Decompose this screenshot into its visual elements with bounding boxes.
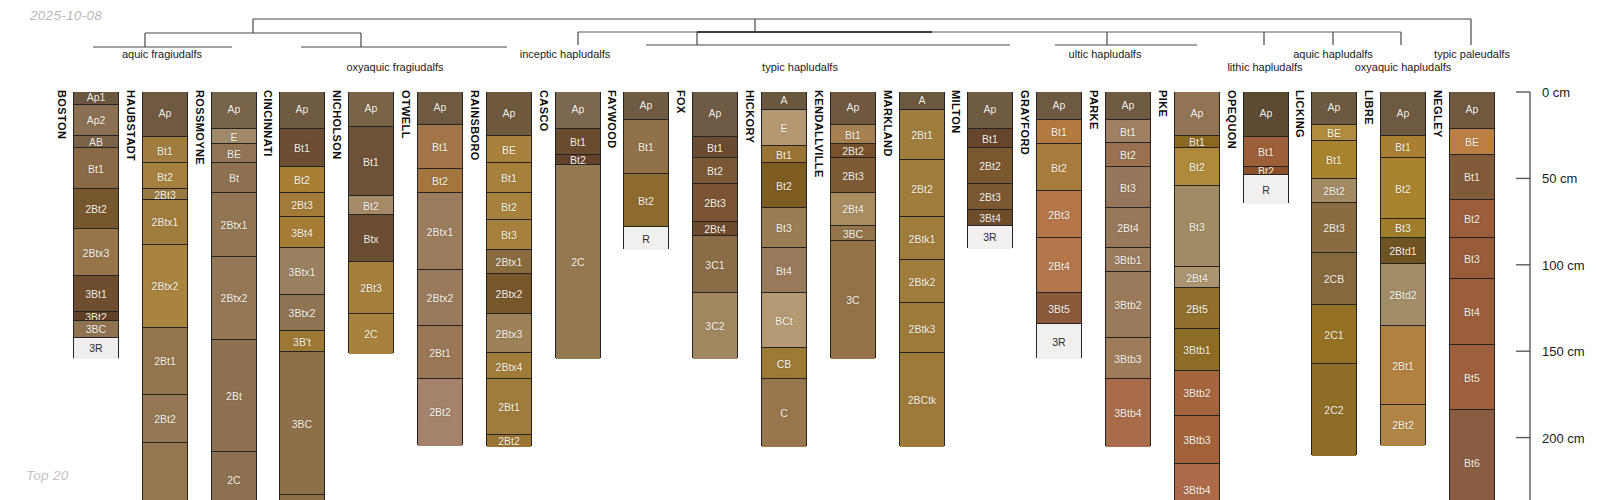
horizon: 2Bt3 [349, 261, 393, 314]
horizon: 2Btx2 [418, 269, 462, 326]
horizon: Bt1 [74, 147, 118, 190]
horizon-label: Ap [1037, 100, 1081, 111]
horizon-label: Bt1 [280, 143, 324, 154]
profile-column-otwell: ApBt1Bt22Btx12Btx22Bt12Bt2 [417, 92, 463, 445]
horizon: C [762, 378, 806, 447]
horizon-label: Bt1 [349, 157, 393, 168]
horizon: Bt1 [762, 145, 806, 164]
horizon: 2Bt1 [900, 109, 944, 161]
horizon-label: 2Bt2 [831, 146, 875, 157]
horizon: Bt2 [693, 157, 737, 184]
horizon-label: BE [1312, 128, 1356, 139]
horizon: 3Btx2 [280, 294, 324, 332]
profile-name-label: NEGLEY [1432, 90, 1444, 138]
cluster-label: lithic hapludalfs [1227, 61, 1302, 73]
horizon: 2C1 [1312, 304, 1356, 364]
horizon-label: BE [1450, 137, 1494, 148]
horizon: 2Bt3 [968, 183, 1012, 210]
horizon: Ap [1381, 92, 1425, 135]
profile-column-libre: ApBt1Bt2Bt32Btd12Btd22Bt12Bt2 [1380, 92, 1426, 445]
profile-column-haubstadt: ApBt1Bt22Bt32Btx12Btx22Bt12Bt2 [142, 92, 188, 500]
horizon-label: 2Btx2 [212, 293, 256, 304]
horizon: Bt2 [1450, 199, 1494, 239]
horizon: 3BC [280, 351, 324, 496]
profile-name-label: GRAYFORD [1019, 90, 1031, 155]
horizon-label: Ap [1312, 102, 1356, 113]
horizon-label: R [1244, 185, 1288, 196]
horizon-label: 3R [968, 232, 1012, 243]
horizon: Bt1 [349, 126, 393, 197]
horizon: Bt1 [1244, 136, 1288, 167]
horizon: 2Bt [212, 339, 256, 453]
horizon: 3C [831, 240, 875, 359]
horizon: 3BC [831, 225, 875, 242]
horizon: 2Bt3 [693, 183, 737, 223]
horizon: Bt2 [762, 162, 806, 208]
horizon-label: 2Btk1 [900, 234, 944, 245]
horizon: E [212, 128, 256, 145]
horizon-label: Btx [349, 234, 393, 245]
horizon-label: 2Bt3 [1312, 223, 1356, 234]
depth-axis-tick-label: 100 cm [1542, 257, 1585, 272]
horizon: 2Bt2 [74, 188, 118, 229]
horizon-label: Bt [212, 173, 256, 184]
horizon: Bt [212, 162, 256, 193]
horizon: Bt2 [1381, 157, 1425, 219]
horizon: 2Btx4 [487, 352, 531, 379]
horizon: BE [212, 143, 256, 164]
profile-column-nicholson: ApBt1Bt2Btx2Bt32C [348, 92, 394, 353]
horizon: 2Btd1 [1381, 237, 1425, 264]
horizon: 3Btb1 [1175, 328, 1219, 371]
horizon: Ap [1312, 92, 1356, 125]
horizon-label: Bt2 [762, 181, 806, 192]
horizon: Bt2 [1106, 142, 1150, 168]
horizon: Bt1 [487, 162, 531, 193]
horizon-label: 3BC [280, 419, 324, 430]
horizon-label: Ap [212, 104, 256, 115]
horizon-label: 2C [556, 257, 600, 268]
horizon-label: 2Bt2 [143, 414, 187, 425]
horizon: Ap [1450, 92, 1494, 128]
horizon-label: Ap [418, 102, 462, 113]
profile-column-fox: ApBt1Bt22Bt32Bt43C13C2 [692, 92, 738, 358]
horizon-label: Ap [968, 104, 1012, 115]
horizon-label: A [762, 95, 806, 106]
horizon-label: Bt1 [1244, 147, 1288, 158]
horizon-label: Ap [487, 108, 531, 119]
horizon-label: 3C1 [693, 260, 737, 271]
horizon-label: 3B't [280, 337, 324, 348]
depth-axis-tick-label: 0 cm [1542, 85, 1570, 100]
horizon: 2Btx1 [418, 192, 462, 271]
horizon: Bt5 [1450, 344, 1494, 411]
horizon-label: Bt3 [1450, 254, 1494, 265]
horizon-label: 2C [212, 475, 256, 486]
horizon: Ap [143, 92, 187, 137]
horizon-label: Bt1 [968, 134, 1012, 145]
horizon-label: BCt [762, 316, 806, 327]
horizon-label: 2Btd1 [1381, 246, 1425, 257]
horizon: Ap [349, 92, 393, 127]
horizon: Bt1 [143, 136, 187, 163]
cluster-label: inceptic hapludalfs [520, 48, 611, 60]
horizon-label: Bt1 [624, 142, 668, 153]
horizon: 2Bt4 [1175, 266, 1219, 288]
profile-name-label: OTWELL [400, 90, 412, 139]
horizon: Bt1 [1106, 119, 1150, 143]
horizon-label: Ap [831, 102, 875, 113]
horizon: BE [487, 135, 531, 164]
horizon-label: 2Bt4 [1037, 261, 1081, 272]
horizon-label: 3Bt4 [968, 213, 1012, 224]
horizon: Bt2 [1175, 147, 1219, 187]
horizon-label: Bt1 [143, 146, 187, 157]
horizon-label: 3Btb2 [1106, 300, 1150, 311]
horizon-label: 2Bt3 [693, 198, 737, 209]
horizon-label: A [900, 95, 944, 106]
profile-name-label: MILTON [950, 90, 962, 134]
horizon-label: 2Btx1 [487, 257, 531, 268]
horizon-label: 2Bt2 [74, 204, 118, 215]
horizon-label: 2Bt1 [900, 130, 944, 141]
horizon-label: Ap [693, 108, 737, 119]
horizon-label: 2C [349, 329, 393, 340]
horizon-label: 3R [1037, 337, 1081, 348]
horizon: Bt1 [1381, 135, 1425, 159]
horizon: 2Bt1 [1381, 325, 1425, 406]
horizon-label: R [624, 234, 668, 245]
horizon-label: 2Bt4 [831, 204, 875, 215]
horizon-label: 2Bt4 [1175, 273, 1219, 284]
cluster-label: typic hapludalfs [762, 61, 838, 73]
horizon: 2BCtk [900, 352, 944, 447]
profile-name-label: FAYWOOD [606, 90, 618, 149]
horizon-label: Bt1 [556, 137, 600, 148]
horizon: 3Btb3 [1175, 415, 1219, 465]
horizon-label: 2C2 [1312, 405, 1356, 416]
bottom-left-annotation: Top 20 [26, 468, 69, 483]
profile-name-label: CASCO [538, 90, 550, 132]
horizon: 2C [556, 164, 600, 359]
profile-column-casco: ApBt1Bt22C [555, 92, 601, 358]
profile-column-rainsboro: ApBEBt1Bt2Bt32Btx12Btx22Btx32Btx42Bt12Bt… [486, 92, 532, 446]
horizon-label: Bt1 [1450, 172, 1494, 183]
horizon-label: Ap [1381, 108, 1425, 119]
horizon-label: Bt3 [1106, 183, 1150, 194]
profile-column-faywood: ApBt1Bt2R [623, 92, 669, 249]
horizon-label: Bt2 [693, 166, 737, 177]
horizon-label: 2Bt2 [1312, 186, 1356, 197]
horizon-label: Bt1 [1106, 127, 1150, 138]
horizon-label: Bt2 [487, 202, 531, 213]
horizon: Bt1 [280, 128, 324, 168]
horizon-label: Bt6 [1450, 458, 1494, 469]
horizon: 2Bt3 [280, 192, 324, 218]
profile-name-label: BOSTON [56, 90, 68, 139]
horizon [143, 442, 187, 500]
horizon-label: Ap [143, 108, 187, 119]
horizon: 2Bt2 [1312, 178, 1356, 204]
horizon-label: 3C2 [693, 321, 737, 332]
horizon-label: E [212, 132, 256, 143]
horizon: Bt4 [1450, 278, 1494, 345]
horizon: Bt3 [1381, 218, 1425, 239]
horizon-label: Ap2 [74, 115, 118, 126]
horizon: A [762, 92, 806, 109]
horizon: Ap [693, 92, 737, 137]
horizon: 3Bt4 [280, 216, 324, 249]
horizon-label: 2Btd2 [1381, 290, 1425, 301]
horizon: Bt1 [968, 128, 1012, 149]
horizon-label: Bt2 [349, 201, 393, 212]
horizon-label: Ap [624, 100, 668, 111]
horizon: Bt6 [1450, 409, 1494, 500]
horizon: 2Bt1 [487, 378, 531, 435]
profile-column-grayford: ApBt1Bt22Bt32Bt43Bt53R [1036, 92, 1082, 358]
profile-name-label: LICKING [1294, 90, 1306, 138]
horizon-label: Bt4 [762, 266, 806, 277]
horizon: Ap [968, 92, 1012, 128]
profile-column-boston: Ap1Ap2ABBt12Bt22Btx33Bt13Bt23BC3R [73, 92, 119, 358]
horizon: 3BC [74, 320, 118, 339]
profile-column-hickory: AEBt1Bt2Bt3Bt4BCtCBC [761, 92, 807, 446]
horizon: Bt1 [1450, 154, 1494, 200]
horizon: Bt2 [487, 192, 531, 221]
horizon: Ap [831, 92, 875, 125]
horizon-label: Bt1 [418, 142, 462, 153]
horizon: 2Btk3 [900, 302, 944, 354]
horizon-label: 2Bt1 [1381, 361, 1425, 372]
horizon: R [624, 226, 668, 250]
horizon: Bt3 [762, 207, 806, 248]
profile-name-label: RAINSBORO [469, 90, 481, 161]
horizon-label: 2Bt2 [900, 184, 944, 195]
horizon: Ap1 [74, 92, 118, 104]
horizon-label: Bt1 [1381, 142, 1425, 153]
profile-column-rossmoyne: ApEBEBt2Btx12Btx22Bt2C [211, 92, 257, 500]
horizon-label: Bt2 [1381, 184, 1425, 195]
horizon: Ap [1037, 92, 1081, 120]
horizon-label: 3Btb4 [1106, 408, 1150, 419]
profile-column-licking: ApBEBt12Bt22Bt32CB2C12C2 [1311, 92, 1357, 455]
horizon-label: Bt2 [1175, 162, 1219, 173]
profile-name-label: NICHOLSON [331, 90, 343, 160]
horizon-label: 2Bt3 [280, 200, 324, 211]
horizon-label: Bt2 [418, 176, 462, 187]
horizon-label: 3Btb3 [1175, 435, 1219, 446]
horizon: 2Bt2 [900, 159, 944, 218]
horizon-label: 3R [74, 343, 118, 354]
profile-name-label: PARKE [1088, 90, 1100, 130]
horizon: 2Btk1 [900, 216, 944, 261]
horizon-label: Ap [556, 104, 600, 115]
profile-name-label: LIBRE [1363, 90, 1375, 125]
horizon-label: 3Btb4 [1175, 485, 1219, 496]
date-annotation: 2025-10-08 [30, 8, 102, 23]
horizon-label: 2Bt2 [487, 436, 531, 447]
horizon-label: 2Btk3 [900, 324, 944, 335]
horizon-label: 2Bt2 [968, 161, 1012, 172]
horizon-label: Bt5 [1450, 373, 1494, 384]
horizon-label: 2BCtk [900, 395, 944, 406]
cluster-label: aquic hapludalfs [1293, 48, 1373, 60]
horizon-label: 2Bt [212, 391, 256, 402]
horizon: 2Bt3 [831, 157, 875, 193]
horizon-label: 2C1 [1312, 330, 1356, 341]
horizon-label: Bt2 [624, 196, 668, 207]
soil-profile-dendrogram-chart: 2025-10-08 Top 20 Ap1Ap2ABBt12Bt22Btx33B… [0, 0, 1600, 500]
horizon-label: 2Btx1 [418, 227, 462, 238]
horizon-label: 2Btx3 [74, 248, 118, 259]
cluster-label: typic paleudalfs [1434, 48, 1510, 60]
horizon: Ap [624, 92, 668, 120]
horizon-label: 2Bt3 [831, 171, 875, 182]
horizon: Ap [1106, 92, 1150, 120]
horizon: Ap [487, 92, 531, 135]
horizon: 2Bt2 [968, 147, 1012, 185]
horizon: 3Btb4 [1175, 463, 1219, 500]
horizon: 2Bt2 [143, 394, 187, 444]
cluster-label: aquic fragiudalfs [122, 48, 202, 60]
horizon-label: 2Btx1 [143, 217, 187, 228]
profile-name-label: OPEQUON [1226, 90, 1238, 149]
horizon: Ap [212, 92, 256, 128]
horizon: 2Bt4 [1106, 207, 1150, 248]
depth-axis-tick-label: 50 cm [1542, 171, 1577, 186]
cluster-label: oxyaquic fragiudalfs [346, 61, 443, 73]
profile-column-parke: ApBt1Bt2Bt32Bt43Btb13Btb23Btb33Btb4 [1105, 92, 1151, 446]
horizon: 3Btb4 [1106, 378, 1150, 447]
horizon-label: Bt1 [487, 173, 531, 184]
horizon: BCt [762, 292, 806, 349]
horizon-label: 3Bt5 [1037, 304, 1081, 315]
horizon-label: Bt1 [74, 164, 118, 175]
horizon-label: 2Bt1 [418, 348, 462, 359]
horizon-label: E [762, 123, 806, 134]
horizon: 2Bt1 [143, 327, 187, 396]
horizon: CB [762, 347, 806, 380]
horizon-label: 2Btk2 [900, 277, 944, 288]
horizon-label: 3Btb2 [1175, 388, 1219, 399]
horizon-label: 2Bt4 [693, 224, 737, 235]
profile-column-negley: ApBEBt1Bt2Bt3Bt4Bt5Bt6 [1449, 92, 1495, 500]
horizon: Bt3 [487, 219, 531, 250]
horizon: 2Bt1 [418, 325, 462, 380]
horizon-label: 2Bt1 [487, 402, 531, 413]
horizon-label: 2Btx4 [487, 362, 531, 373]
horizon-label: Ap [1106, 100, 1150, 111]
profile-column-cincinnati: ApBt1Bt22Bt33Bt43Btx13Btx23B't3BC [279, 92, 325, 500]
horizon: Bt4 [762, 247, 806, 293]
horizon-label: C [762, 408, 806, 419]
horizon: BE [1312, 124, 1356, 141]
horizon: Bt2 [349, 195, 393, 216]
horizon-label: Bt3 [1175, 222, 1219, 233]
horizon: 2Bt3 [1312, 202, 1356, 254]
profile-name-label: HICKORY [744, 90, 756, 143]
profile-name-label: FOX [675, 90, 687, 114]
horizon-label: BE [487, 145, 531, 156]
horizon-label: 3Btx1 [280, 267, 324, 278]
horizon-label: Bt1 [831, 130, 875, 141]
horizon: 3R [968, 225, 1012, 249]
horizon: 3R [74, 337, 118, 359]
horizon: 2Btk2 [900, 259, 944, 304]
horizon-label: 2Btx1 [212, 220, 256, 231]
profile-name-label: ROSSMOYNE [194, 90, 206, 165]
horizon-label: 2Bt1 [143, 356, 187, 367]
horizon: 2Bt5 [1175, 287, 1219, 330]
horizon: 3Btb3 [1106, 337, 1150, 380]
horizon: Bt1 [556, 128, 600, 155]
horizon: Btx [349, 214, 393, 262]
horizon: 3Btb2 [1175, 370, 1219, 416]
horizon-label: 3Btx2 [280, 308, 324, 319]
depth-axis-tick-label: 200 cm [1542, 430, 1585, 445]
horizon-label: Ap [1175, 108, 1219, 119]
horizon-label: Bt2 [1450, 214, 1494, 225]
horizon-label: 2Bt5 [1175, 304, 1219, 315]
horizon: Ap [418, 92, 462, 125]
horizon: Ap [1175, 92, 1219, 135]
horizon: 3Bt5 [1037, 292, 1081, 325]
horizon-label: 2Btx2 [487, 289, 531, 300]
horizon: Bt2 [624, 173, 668, 228]
horizon-label: 2Bt2 [1381, 420, 1425, 431]
horizon-label: Bt2 [280, 175, 324, 186]
profile-name-label: KENDALLVILLE [813, 90, 825, 178]
horizon-label: 3Btb1 [1106, 255, 1150, 266]
horizon-label: Bt1 [693, 143, 737, 154]
horizon: Ap [1244, 92, 1288, 137]
horizon-label: 2Btx2 [143, 281, 187, 292]
horizon [280, 494, 324, 500]
horizon-label: Ap [349, 103, 393, 114]
horizon: A [900, 92, 944, 109]
profile-name-label: HAUBSTADT [125, 90, 137, 161]
horizon: 2C [212, 451, 256, 500]
horizon-label: 3Bt1 [74, 289, 118, 300]
horizon-label: Ap [1244, 108, 1288, 119]
horizon-label: Bt2 [1106, 150, 1150, 161]
horizon-label: 3Btb1 [1175, 345, 1219, 356]
horizon-label: Bt3 [487, 230, 531, 241]
horizon-label: CB [762, 359, 806, 370]
horizon-label: 2CB [1312, 274, 1356, 285]
horizon: 2Bt2 [418, 378, 462, 445]
horizon-label: Bt1 [762, 150, 806, 161]
horizon-label: Bt1 [1037, 127, 1081, 138]
horizon-label: Bt2 [143, 172, 187, 183]
horizon: 2Btx2 [212, 256, 256, 340]
horizon: 3Btb2 [1106, 271, 1150, 338]
horizon: Bt2 [1037, 143, 1081, 191]
horizon-label: BE [212, 149, 256, 160]
horizon-label: 2Btx3 [487, 329, 531, 340]
horizon: 3Bt1 [74, 275, 118, 313]
cluster-label: oxyaquic hapludalfs [1355, 61, 1452, 73]
profile-name-label: CINCINNATI [262, 90, 274, 157]
horizon: 2Btx1 [143, 199, 187, 245]
horizon-label: 3Bt4 [280, 228, 324, 239]
horizon: 3B't [280, 330, 324, 352]
horizon: Bt3 [1450, 237, 1494, 280]
cluster-label: ultic hapludalfs [1069, 48, 1142, 60]
horizon-label: Bt2 [1037, 163, 1081, 174]
horizon: BE [1450, 128, 1494, 155]
horizon-label: Ap [280, 104, 324, 115]
